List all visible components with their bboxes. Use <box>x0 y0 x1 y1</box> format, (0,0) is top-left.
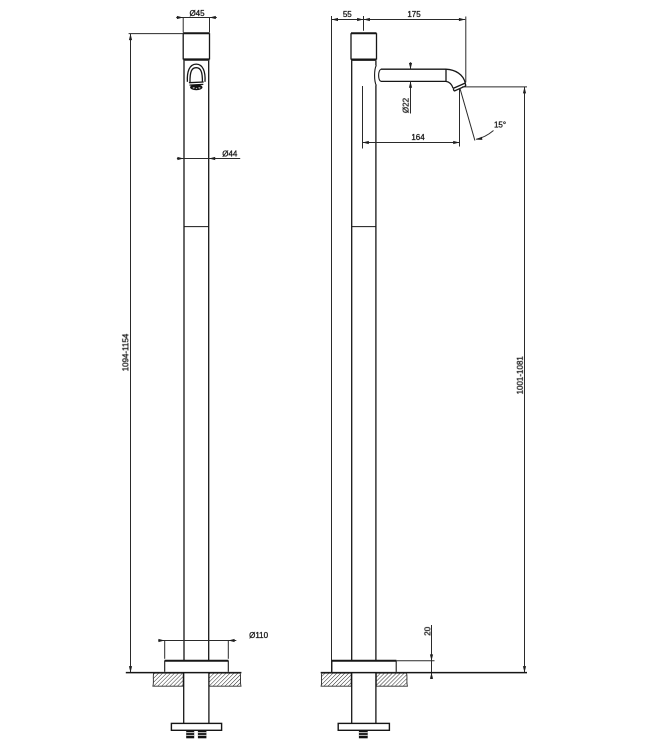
svg-text:Ø110: Ø110 <box>249 631 269 640</box>
svg-text:Ø45: Ø45 <box>189 9 205 18</box>
svg-text:20: 20 <box>423 626 432 635</box>
svg-text:164: 164 <box>411 133 425 142</box>
svg-text:Ø22: Ø22 <box>402 97 411 113</box>
svg-text:175: 175 <box>407 10 421 19</box>
svg-text:55: 55 <box>343 10 352 19</box>
svg-text:Ø44: Ø44 <box>222 150 238 159</box>
svg-text:15°: 15° <box>494 120 506 129</box>
svg-text:1094-1154: 1094-1154 <box>121 333 130 371</box>
svg-text:1001-1081: 1001-1081 <box>516 356 525 395</box>
